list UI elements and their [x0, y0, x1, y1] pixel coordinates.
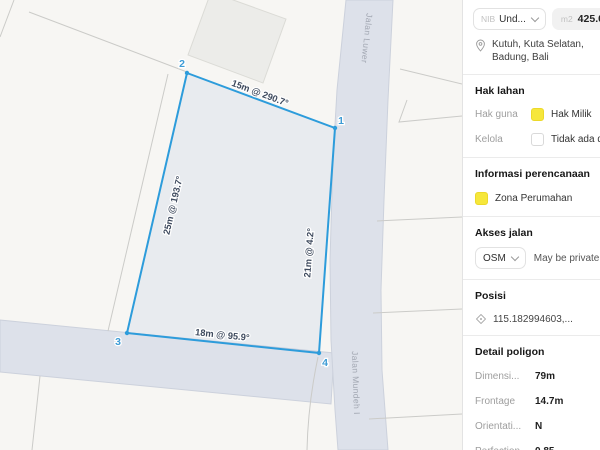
area-field: m2 425.0: [552, 8, 600, 30]
detail-value: 79m: [535, 371, 555, 382]
section-title-posisi: Posisi: [475, 290, 592, 302]
kelola-value: Tidak ada data: [551, 134, 600, 145]
detail-label: Frontage: [475, 396, 535, 407]
vertex-handle-4[interactable]: [317, 351, 321, 355]
hak-guna-value: Hak Milik: [551, 109, 592, 120]
divider: [463, 335, 600, 336]
detail-row-perfection: Perfection 0.85: [475, 445, 596, 450]
detail-label: Orientati...: [475, 421, 535, 432]
map-canvas[interactable]: 2 1 3 4 15m @ 290.7° 25m @ 193.7° 21m @ …: [0, 0, 462, 450]
location-text: Kutuh, Kuta Selatan, Badung, Bali: [492, 38, 596, 64]
detail-label: Dimensi...: [475, 371, 535, 382]
detail-row-dimensi: Dimensi... 79m: [475, 370, 596, 383]
detail-value: N: [535, 421, 542, 432]
area-unit: m2: [561, 14, 573, 24]
road-source-value: OSM: [483, 253, 506, 264]
vertex-handle-2[interactable]: [185, 71, 189, 75]
zona-row: Zona Perumahan: [475, 191, 596, 206]
divider: [463, 74, 600, 75]
hak-guna-label: Hak guna: [475, 109, 531, 120]
divider: [463, 216, 600, 217]
parcel-id-prefix: NIB: [481, 14, 495, 24]
detail-label: Perfection: [475, 446, 535, 450]
zona-color-swatch: [475, 192, 488, 205]
kelola-row: Kelola Tidak ada data: [475, 132, 596, 147]
vertex-label-2: 2: [179, 58, 185, 70]
hak-guna-row: Hak guna Hak Milik: [475, 107, 596, 122]
road-access-note: May be private: [534, 253, 600, 264]
top-controls: NIB Und... m2 425.0: [473, 8, 600, 30]
section-title-akses-jalan: Akses jalan: [475, 227, 592, 239]
parcel-id-select[interactable]: NIB Und...: [473, 8, 546, 30]
section-title-perencanaan: Informasi perencanaan: [475, 168, 592, 180]
kelola-label: Kelola: [475, 134, 531, 145]
map-pin-icon: [475, 39, 486, 52]
chevron-down-icon: [531, 13, 539, 21]
divider: [463, 279, 600, 280]
position-crosshair-icon: [475, 313, 487, 325]
details-sidebar: NIB Und... m2 425.0 Kutuh, Kuta Selatan,…: [462, 0, 600, 450]
section-title-hak-lahan: Hak lahan: [475, 85, 592, 97]
position-coordinates: 115.182994603,...: [493, 314, 573, 325]
divider: [463, 157, 600, 158]
road-source-select[interactable]: OSM: [475, 247, 526, 269]
vertex-handle-1[interactable]: [333, 126, 337, 130]
vertex-label-1: 1: [338, 115, 344, 127]
hak-guna-color-swatch: [531, 108, 544, 121]
parcel-id-value: Und...: [499, 14, 526, 25]
detail-value: 14.7m: [535, 396, 563, 407]
vertex-label-4: 4: [322, 357, 328, 369]
detail-row-frontage: Frontage 14.7m: [475, 395, 596, 408]
vertex-label-3: 3: [115, 336, 121, 348]
area-value: 425.0: [578, 13, 600, 25]
land-parcel-app: 2 1 3 4 15m @ 290.7° 25m @ 193.7° 21m @ …: [0, 0, 600, 450]
section-title-detail-poligon: Detail poligon: [475, 346, 592, 358]
kelola-color-swatch: [531, 133, 544, 146]
location-row: Kutuh, Kuta Selatan, Badung, Bali: [475, 38, 596, 64]
detail-value: 0.85: [535, 446, 554, 450]
detail-row-orientation: Orientati... N: [475, 420, 596, 433]
vertex-handle-3[interactable]: [125, 331, 129, 335]
chevron-down-icon: [511, 252, 519, 260]
zona-value: Zona Perumahan: [495, 193, 572, 204]
akses-jalan-row: OSM May be private: [475, 247, 600, 269]
position-row: 115.182994603,...: [475, 313, 596, 325]
